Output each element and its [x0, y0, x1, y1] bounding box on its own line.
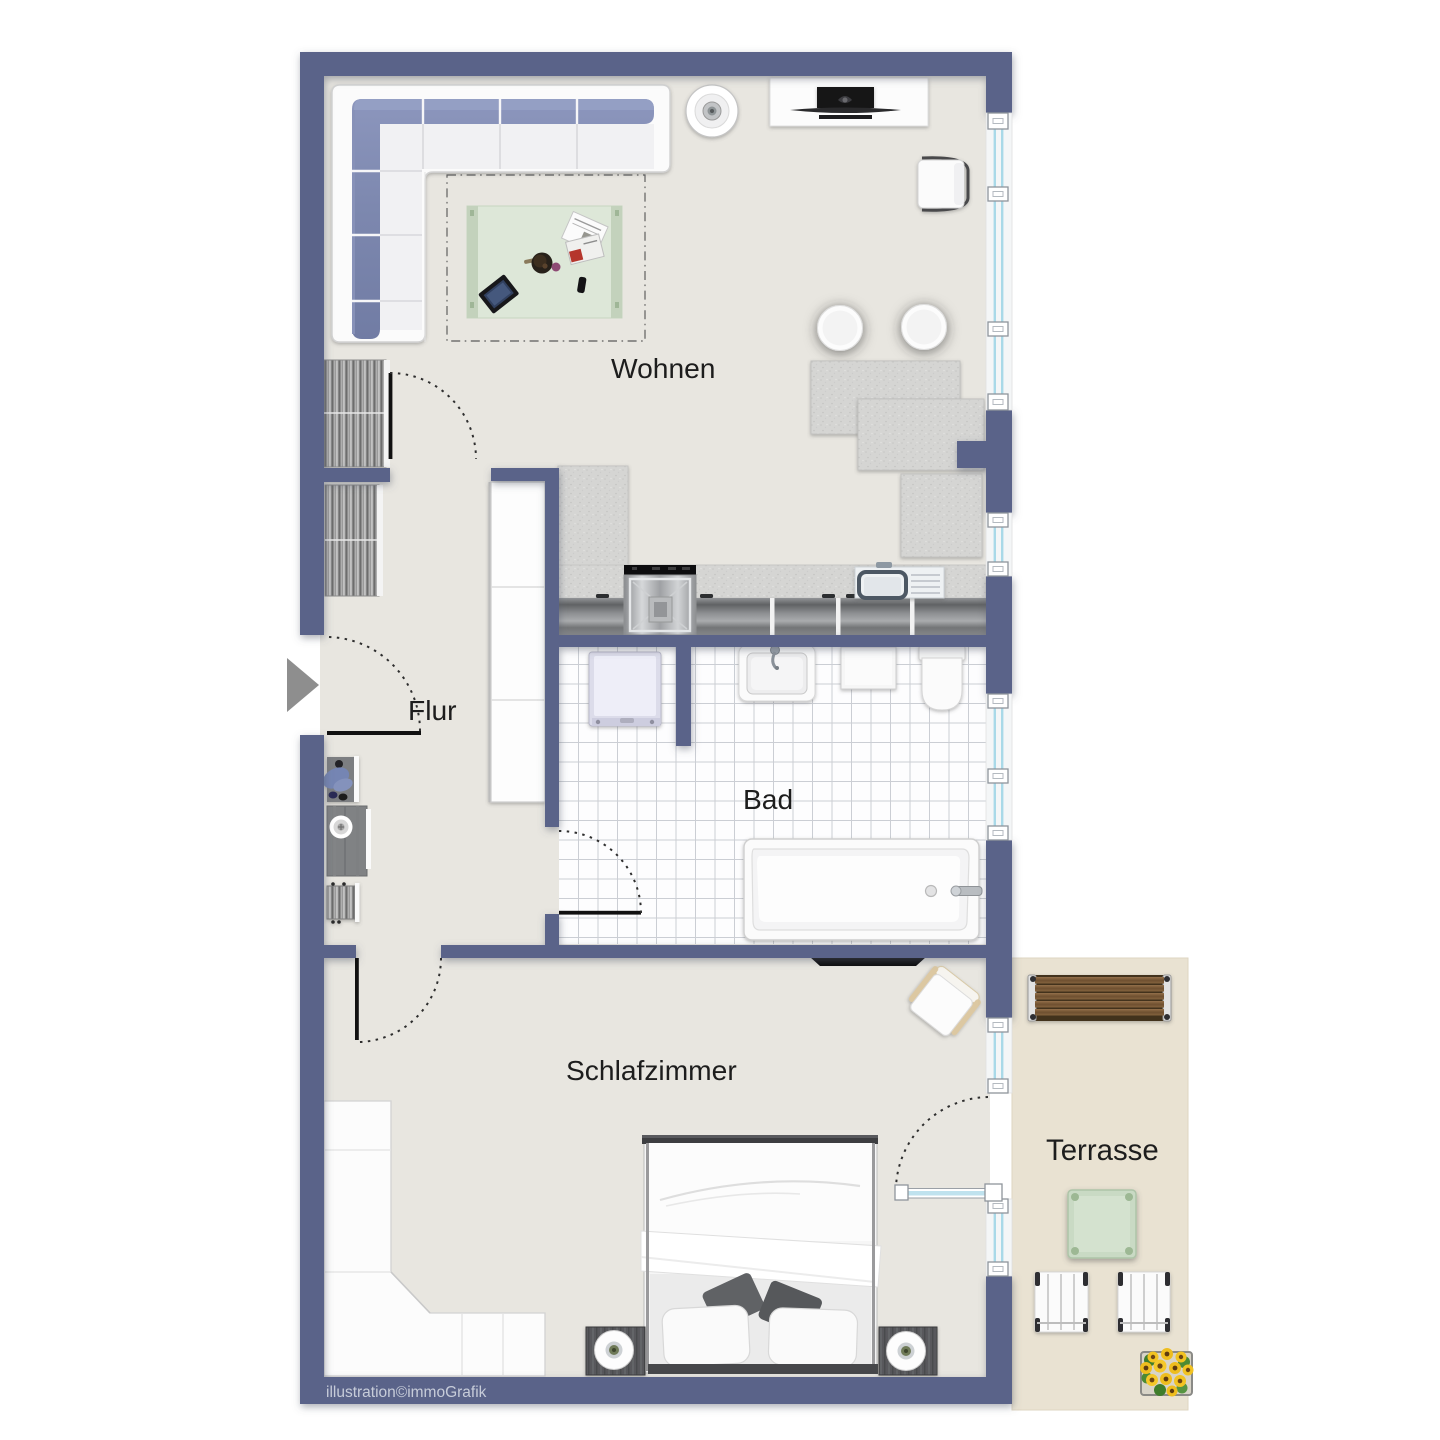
svg-text:Schlafzimmer: Schlafzimmer: [566, 1054, 737, 1086]
svg-text:Wohnen: Wohnen: [611, 352, 715, 384]
svg-text:Flur: Flur: [408, 694, 457, 726]
svg-text:Terrasse: Terrasse: [1046, 1134, 1159, 1167]
svg-text:Bad: Bad: [743, 783, 793, 815]
svg-text:illustration©immoGrafik: illustration©immoGrafik: [326, 1384, 487, 1401]
